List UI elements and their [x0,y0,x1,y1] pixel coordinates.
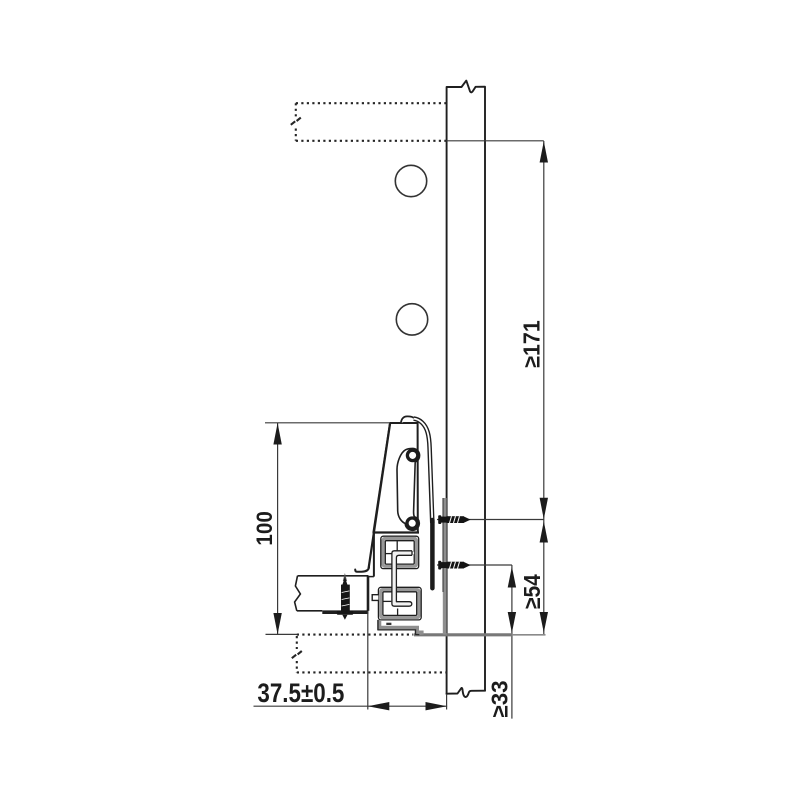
svg-text:≥54: ≥54 [519,574,545,609]
svg-text:≥171: ≥171 [519,320,545,368]
svg-text:≥33: ≥33 [486,681,512,718]
svg-text:100: 100 [252,511,277,546]
svg-text:37.5±0.5: 37.5±0.5 [257,678,344,708]
